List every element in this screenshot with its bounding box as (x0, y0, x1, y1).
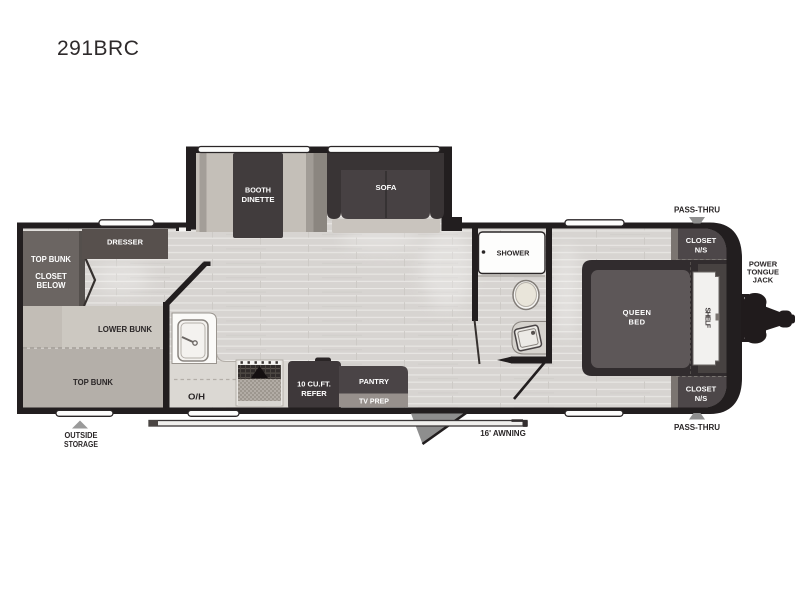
svg-text:CLOSET: CLOSET (686, 385, 717, 394)
svg-text:N/S: N/S (695, 246, 708, 255)
svg-text:PASS-THRU: PASS-THRU (674, 206, 720, 215)
svg-text:TOP BUNK: TOP BUNK (31, 255, 71, 264)
svg-text:DRESSER: DRESSER (107, 238, 144, 247)
svg-text:TV PREP: TV PREP (359, 399, 389, 406)
svg-text:BOOTH: BOOTH (245, 186, 271, 195)
svg-text:291BRC: 291BRC (57, 37, 139, 60)
svg-text:LOWER BUNK: LOWER BUNK (98, 325, 152, 334)
svg-text:BED: BED (628, 318, 645, 327)
svg-text:SOFA: SOFA (376, 183, 398, 192)
svg-text:CLOSET: CLOSET (35, 272, 67, 281)
svg-text:SHELF: SHELF (704, 308, 711, 329)
svg-text:PANTRY: PANTRY (359, 377, 389, 386)
svg-text:10 CU.FT.: 10 CU.FT. (297, 380, 331, 389)
svg-text:N/S: N/S (695, 394, 708, 403)
svg-text:REFER: REFER (301, 389, 327, 398)
svg-text:TOP BUNK: TOP BUNK (73, 378, 113, 387)
svg-text:SHOWER: SHOWER (497, 249, 531, 258)
svg-text:QUEEN: QUEEN (623, 308, 652, 317)
svg-text:BELOW: BELOW (36, 281, 66, 290)
svg-text:O/H: O/H (188, 392, 205, 402)
svg-text:16' AWNING: 16' AWNING (480, 429, 526, 438)
svg-text:STORAGE: STORAGE (64, 440, 99, 449)
svg-text:OUTSIDE: OUTSIDE (65, 431, 99, 440)
svg-text:DINETTE: DINETTE (242, 195, 275, 204)
svg-text:PASS-THRU: PASS-THRU (674, 423, 720, 432)
svg-text:JACK: JACK (753, 276, 774, 285)
svg-text:CLOSET: CLOSET (686, 236, 717, 245)
